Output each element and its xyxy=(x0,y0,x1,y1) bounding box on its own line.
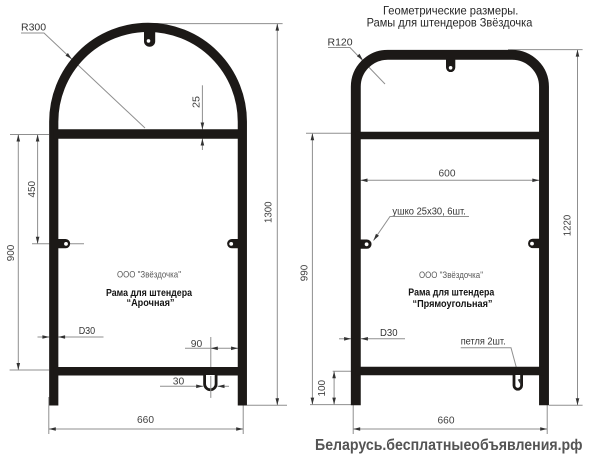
svg-text:D30: D30 xyxy=(380,327,398,339)
svg-text:петля 2шт.: петля 2шт. xyxy=(461,337,506,348)
svg-text:100: 100 xyxy=(316,380,328,397)
svg-text:1300: 1300 xyxy=(263,201,275,223)
svg-text:1220: 1220 xyxy=(561,215,573,237)
svg-text:R120: R120 xyxy=(328,37,353,49)
svg-text:ООО "Звёздочка": ООО "Звёздочка" xyxy=(419,270,483,280)
svg-text:R300: R300 xyxy=(21,22,46,34)
svg-text:Рама для штендера: Рама для штендера xyxy=(408,288,494,299)
svg-text:ООО "Звёздочка": ООО "Звёздочка" xyxy=(117,270,181,280)
svg-text:660: 660 xyxy=(438,415,455,427)
svg-text:“Прямоугольная”: “Прямоугольная” xyxy=(413,299,493,310)
svg-text:“Арочная”: “Арочная” xyxy=(127,298,175,309)
svg-text:30: 30 xyxy=(173,376,185,388)
svg-text:990: 990 xyxy=(299,265,311,282)
svg-text:ушко 25х30, 6шт.: ушко 25х30, 6шт. xyxy=(392,207,466,218)
svg-text:25: 25 xyxy=(191,96,203,108)
svg-text:600: 600 xyxy=(439,168,456,180)
svg-text:900: 900 xyxy=(5,245,17,262)
svg-text:Беларусь.бесплатныеобъявления.: Беларусь.бесплатныеобъявления.рф xyxy=(315,437,583,454)
svg-text:Рамы для штендеров Звёздочка: Рамы для штендеров Звёздочка xyxy=(367,15,533,29)
svg-text:660: 660 xyxy=(137,414,154,426)
svg-text:450: 450 xyxy=(26,181,38,198)
svg-text:D30: D30 xyxy=(79,325,96,337)
